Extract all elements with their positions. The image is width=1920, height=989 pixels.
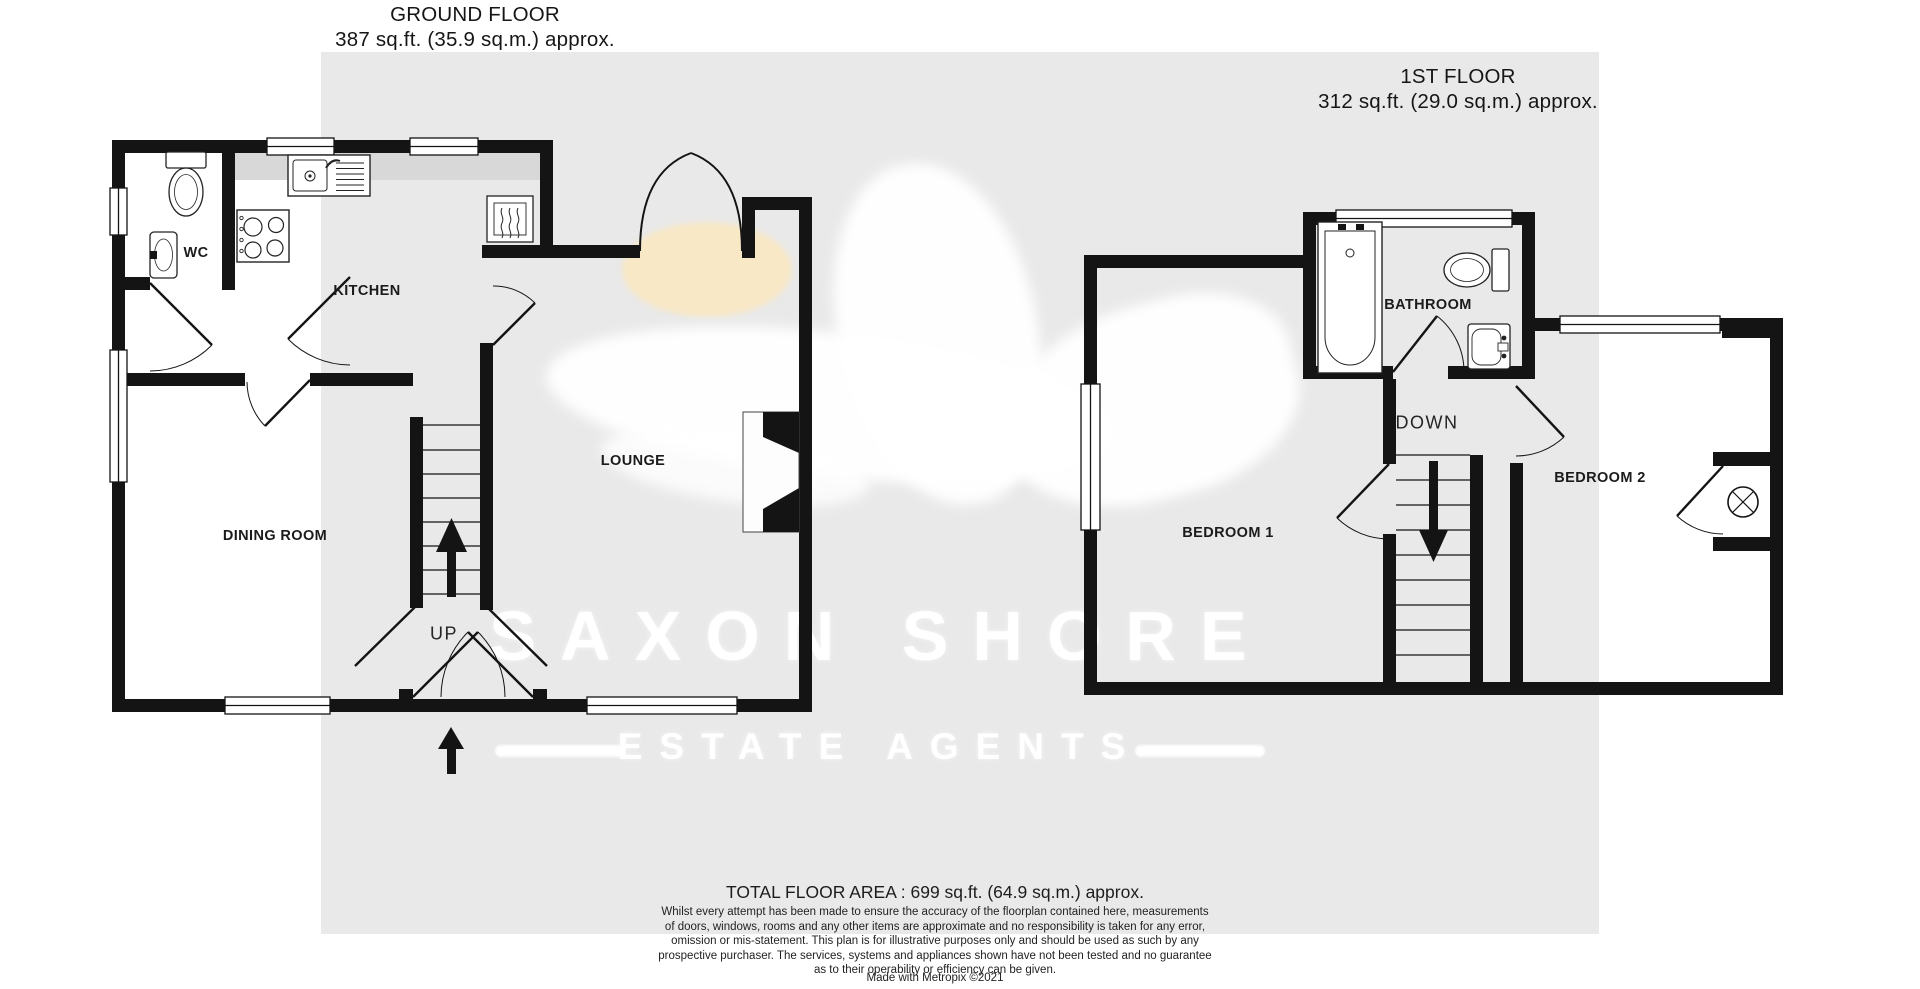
- disclaimer-line: Whilst every attempt has been made to en…: [435, 905, 1435, 920]
- first-floor-plan: [1070, 195, 1795, 710]
- dining-room-door: [247, 380, 310, 426]
- window: [587, 697, 737, 714]
- ground-floor-walls: [112, 140, 812, 712]
- bathroom-door: [1393, 316, 1464, 372]
- staircase-down: [1396, 455, 1470, 655]
- kitchen-sink: [288, 155, 370, 196]
- toilet: [1444, 249, 1509, 291]
- disclaimer-line: of doors, windows, rooms and any other i…: [435, 920, 1435, 935]
- french-doors: [640, 153, 742, 251]
- credit-line: Made with Metropix ©2021: [435, 972, 1435, 984]
- total-floor-area: TOTAL FLOOR AREA : 699 sq.ft. (64.9 sq.m…: [435, 882, 1435, 903]
- window: [267, 138, 334, 155]
- room-label-bedroom2: BEDROOM 2: [1554, 470, 1645, 486]
- staircase-up: [423, 425, 480, 597]
- kitchen-hob: [237, 210, 289, 262]
- lounge-door: [493, 286, 535, 345]
- first-floor-walls: [1084, 212, 1783, 695]
- front-door: [355, 606, 547, 697]
- watermark-right-bar: [1135, 745, 1265, 757]
- room-label-wc: WC: [184, 245, 209, 261]
- boiler: [487, 196, 533, 242]
- chimney-breast: [743, 412, 799, 532]
- window: [110, 188, 127, 235]
- down-arrow-icon: [1419, 461, 1448, 562]
- kitchen-counter: [235, 153, 540, 180]
- ground-floor-windows: [110, 138, 737, 714]
- bathtub: [1318, 222, 1382, 373]
- up-arrow-icon: [436, 518, 467, 597]
- room-label-dining: DINING ROOM: [223, 528, 327, 544]
- bedroom2-door: [1516, 386, 1564, 456]
- stairs-label-up: UP: [430, 624, 458, 645]
- disclaimer: Whilst every attempt has been made to en…: [435, 905, 1435, 978]
- disclaimer-line: prospective purchaser. The services, sys…: [435, 949, 1435, 964]
- wc-basin: [150, 232, 177, 278]
- light-symbol-icon: [1728, 487, 1758, 517]
- wc-door: [150, 283, 212, 371]
- bedroom1-door: [1337, 464, 1389, 539]
- room-label-bathroom: BATHROOM: [1384, 297, 1472, 313]
- washbasin: [1468, 324, 1510, 369]
- window: [225, 697, 330, 714]
- room-label-kitchen: KITCHEN: [333, 283, 400, 299]
- window: [1081, 384, 1100, 530]
- ground-floor-plan: [95, 125, 825, 790]
- window: [110, 350, 127, 482]
- stairs-label-down: DOWN: [1396, 413, 1459, 434]
- room-label-lounge: LOUNGE: [601, 453, 665, 469]
- room-label-bedroom1: BEDROOM 1: [1182, 525, 1273, 541]
- north-arrow: [438, 727, 464, 774]
- window: [410, 138, 478, 155]
- ground-floor-title-line: GROUND FLOOR: [275, 2, 675, 27]
- bedroom2-closet-door: [1677, 466, 1723, 534]
- first-floor-area: 312 sq.ft. (29.0 sq.m.) approx.: [1258, 89, 1658, 114]
- wc-toilet: [166, 152, 206, 216]
- ground-floor-area: 387 sq.ft. (35.9 sq.m.) approx.: [275, 27, 675, 52]
- first-floor-title: 1ST FLOOR 312 sq.ft. (29.0 sq.m.) approx…: [1258, 64, 1658, 114]
- first-floor-title-line: 1ST FLOOR: [1258, 64, 1658, 89]
- disclaimer-line: omission or mis-statement. This plan is …: [435, 934, 1435, 949]
- window: [1560, 316, 1720, 333]
- ground-floor-title: GROUND FLOOR 387 sq.ft. (35.9 sq.m.) app…: [275, 2, 675, 52]
